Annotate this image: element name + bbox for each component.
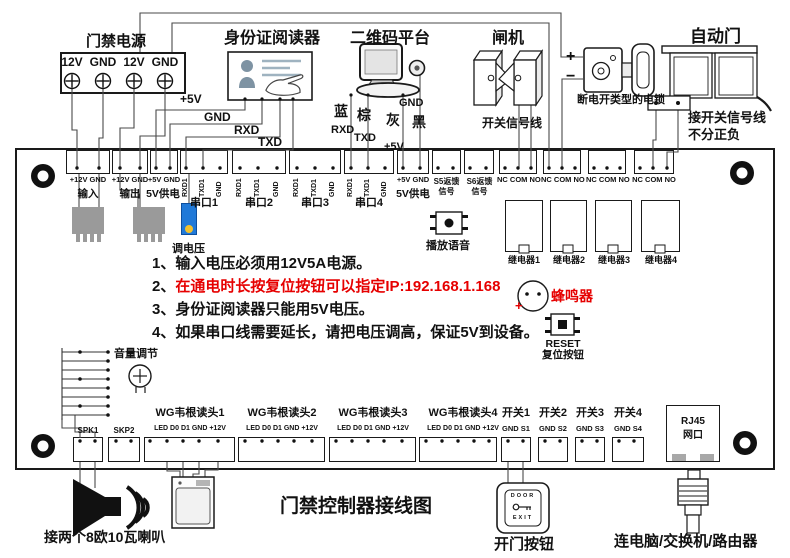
label-spk1: SPK1 — [72, 426, 104, 435]
volume-label: 音量调节 — [114, 348, 158, 361]
pins-relay1: NC COM NO — [497, 176, 539, 185]
reader-wire-5v: +5V — [180, 93, 202, 107]
terminal-block-skp2 — [108, 437, 140, 462]
automatic-door-icon — [648, 46, 771, 111]
pins-wg3: LED D0 D1 GND +12V — [328, 425, 418, 433]
terminal-block-sw4 — [612, 437, 644, 462]
page-title: 门禁控制器接线图 — [280, 496, 432, 518]
pins-sw2: GND S2 — [533, 425, 573, 434]
label-s5-1: S5返馈 — [429, 177, 464, 186]
serial4-gnd: GND — [381, 175, 388, 197]
label-skp2: SKP2 — [107, 426, 141, 435]
label-voice: 播放语音 — [426, 240, 470, 253]
label-serial4: 串口4 — [344, 197, 394, 210]
terminal-block-wg1 — [144, 437, 235, 462]
serial3-rxd: RXD1 — [293, 175, 300, 197]
wiring-diagram: 门禁电源 12V GND 12V GND 身份证阅读器 +5V GND RXD … — [0, 0, 790, 558]
label-serial1: 串口1 — [180, 197, 228, 210]
qr-wire-brown: 棕 — [357, 107, 371, 123]
serial4-txd: TXD1 — [364, 175, 371, 197]
label-relay4: 继电器4 — [639, 255, 683, 265]
pins-sw1: GND S1 — [496, 425, 536, 434]
label-sw4: 开关4 — [609, 407, 647, 420]
net-note: 连电脑/交换机/路由器 — [614, 533, 757, 550]
terminal-block-relay1 — [499, 150, 537, 174]
pins-5v2: +5V GND — [395, 176, 431, 185]
door-note2: 不分正负 — [688, 128, 740, 143]
button-label: 开门按钮 — [491, 536, 557, 553]
relay-4 — [641, 200, 680, 252]
qr-sig-gnd: GND — [399, 97, 423, 110]
gate-note: 开关信号线 — [482, 117, 542, 131]
label-relay2: 继电器2 — [548, 255, 590, 265]
regulator-chip-2 — [133, 207, 165, 234]
pins-relay2: NC COM NO — [541, 176, 583, 185]
terminal-block-sw2 — [538, 437, 568, 462]
qr-wire-gray: 灰 — [386, 112, 400, 128]
note-2: 2、在通电时长按复位按钮可以指定IP:192.168.1.168 — [152, 275, 539, 298]
note-3: 3、身份证阅读器只能用5V电压。 — [152, 298, 539, 321]
note-2-red: 在通电时长按复位按钮可以指定IP:192.168.1.168 — [175, 278, 500, 295]
pins-wg2: LED D0 D1 GND +12V — [237, 425, 327, 433]
terminal-block-relay4 — [634, 150, 674, 174]
serial1-gnd: GND — [216, 175, 223, 197]
lock-plus: + — [566, 48, 575, 66]
label-wg3: WG韦根读头3 — [328, 407, 418, 420]
terminal-block-spk1 — [73, 437, 103, 462]
serial4-rxd: RXD1 — [347, 175, 354, 197]
serial3-txd: TXD1 — [311, 175, 318, 197]
qr-sig-5v: +5V — [384, 141, 404, 154]
lock-label: 断电开类型的电锁 — [577, 94, 665, 107]
speaker-note: 接两个8欧10瓦喇叭 — [44, 529, 165, 545]
label-sw3: 开关3 — [572, 407, 608, 420]
serial2-txd: TXD1 — [254, 175, 261, 197]
rj45-label-1: RJ45 — [666, 416, 720, 428]
terminal-block-output — [112, 150, 148, 174]
label-wg1: WG韦根读头1 — [144, 407, 236, 420]
label-wg2: WG韦根读头2 — [237, 407, 327, 420]
power-terminal-1: 12V — [58, 56, 86, 70]
qr-scanner-icon — [349, 44, 424, 97]
reader-wire-gnd: GND — [204, 111, 231, 125]
qr-title: 二维码平台 — [350, 30, 430, 48]
label-wg4: WG韦根读头4 — [417, 407, 509, 420]
label-5v2: 5V供电 — [393, 188, 433, 200]
label-5v: 5V供电 — [143, 188, 183, 200]
power-terminal-3: 12V — [120, 56, 148, 70]
rj45-plug-icon — [678, 470, 708, 533]
button-exit-text: EXIT — [505, 515, 541, 521]
label-input: 输入 — [66, 188, 110, 200]
qr-wire-black: 黑 — [412, 114, 426, 130]
terminal-block-s6 — [464, 150, 494, 174]
electric-lock-icon — [584, 44, 654, 96]
note-4: 4、如果串口线需要延长，请把电压调高，保证5V到设备。 — [152, 321, 539, 344]
relay-2 — [550, 200, 587, 252]
pins-output: +12V GND — [110, 176, 150, 185]
relay-3 — [595, 200, 632, 252]
door-title: 自动门 — [690, 27, 741, 47]
terminal-block-wg4 — [419, 437, 497, 462]
note-1: 1、输入电压必须用12V5A电源。 — [152, 252, 539, 275]
notes: 1、输入电压必须用12V5A电源。 2、在通电时长按复位按钮可以指定IP:192… — [152, 252, 539, 344]
pins-relay4: NC COM NO — [632, 176, 676, 185]
pins-input: +12V GND — [66, 176, 110, 185]
terminal-block-relay2 — [543, 150, 581, 174]
card-reader-device-icon — [172, 477, 214, 528]
reader-wire-txd: TXD — [258, 136, 282, 150]
pins-sw4: GND S4 — [607, 425, 649, 434]
label-serial3: 串口3 — [289, 197, 341, 210]
serial3-gnd: GND — [329, 175, 336, 197]
terminal-block-serial2 — [232, 150, 286, 174]
power-terminal-4: GND — [151, 56, 179, 70]
label-s6-2: 信号 — [462, 187, 497, 196]
terminal-block-relay3 — [588, 150, 626, 174]
terminal-block-5v — [150, 150, 178, 174]
power-terminal-2: GND — [89, 56, 117, 70]
buzzer-label: 蜂鸣器 — [551, 288, 593, 304]
speaker-icon — [73, 479, 148, 536]
terminal-block-sw3 — [575, 437, 605, 462]
reset-label-2: 复位按钮 — [541, 349, 585, 361]
label-s5-2: 信号 — [429, 187, 464, 196]
terminal-block-wg2 — [238, 437, 325, 462]
serial2-gnd: GND — [273, 175, 280, 197]
serial1-rxd: RXD1 — [182, 175, 189, 197]
relay-1 — [505, 200, 543, 252]
lock-minus: − — [566, 68, 575, 86]
exit-button-icon — [497, 483, 549, 533]
serial2-rxd: RXD1 — [236, 175, 243, 197]
terminal-block-wg3 — [329, 437, 416, 462]
power-title: 门禁电源 — [86, 33, 146, 50]
terminal-block-input — [66, 150, 110, 174]
turnstile-icon — [474, 51, 542, 105]
reader-title: 身份证阅读器 — [224, 30, 320, 48]
buzzer-plus: + — [515, 299, 523, 314]
terminal-block-serial1 — [180, 150, 228, 174]
label-serial2: 串口2 — [232, 197, 286, 210]
terminal-block-sw1 — [501, 437, 531, 462]
rj45-label-2: 网口 — [666, 430, 720, 442]
label-sw2: 开关2 — [535, 407, 571, 420]
id-card-reader-icon — [228, 52, 312, 101]
label-s6-1: S6返馈 — [462, 177, 497, 186]
terminal-block-s5 — [432, 150, 461, 174]
serial1-txd: TXD1 — [199, 175, 206, 197]
regulator-chip-1 — [72, 207, 104, 234]
qr-sig-txd: TXD — [354, 132, 376, 145]
pins-wg1: LED D0 D1 GND +12V — [144, 425, 236, 433]
terminal-block-serial3 — [289, 150, 341, 174]
label-relay3: 继电器3 — [593, 255, 635, 265]
reader-wire-rxd: RXD — [234, 124, 259, 138]
pins-relay3: NC COM NO — [586, 176, 628, 185]
door-note1: 接开关信号线 — [688, 111, 766, 126]
pins-5v: +5V GND — [146, 176, 182, 185]
label-sw1: 开关1 — [498, 407, 534, 420]
qr-sig-rxd: RXD — [331, 124, 354, 137]
gate-title: 闸机 — [492, 30, 524, 48]
button-door-text: DOOR — [505, 493, 541, 499]
pins-sw3: GND S3 — [570, 425, 610, 434]
qr-wire-blue: 蓝 — [334, 103, 348, 119]
